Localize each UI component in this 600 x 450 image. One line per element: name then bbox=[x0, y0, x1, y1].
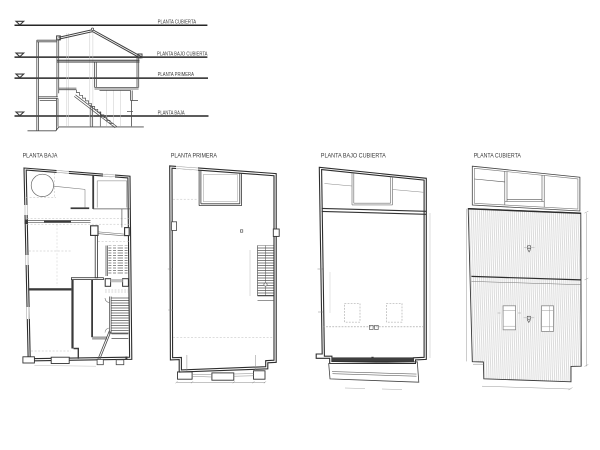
svg-text:PLANTA PRIMERA: PLANTA PRIMERA bbox=[171, 152, 218, 159]
svg-text:PLANTA BAJO CUBIERTA: PLANTA BAJO CUBIERTA bbox=[157, 52, 208, 58]
svg-text:PLANTA BAJA: PLANTA BAJA bbox=[158, 110, 185, 116]
svg-text:PLANTA PRIMERA: PLANTA PRIMERA bbox=[158, 72, 195, 78]
svg-text:PLANTA CUBIERTA: PLANTA CUBIERTA bbox=[474, 152, 522, 159]
svg-text:PLANTA BAJO CUBIERTA: PLANTA BAJO CUBIERTA bbox=[321, 152, 387, 159]
svg-text:PLANTA CUBIERTA: PLANTA CUBIERTA bbox=[158, 20, 197, 26]
svg-text:PLANTA BAJA: PLANTA BAJA bbox=[23, 152, 58, 159]
